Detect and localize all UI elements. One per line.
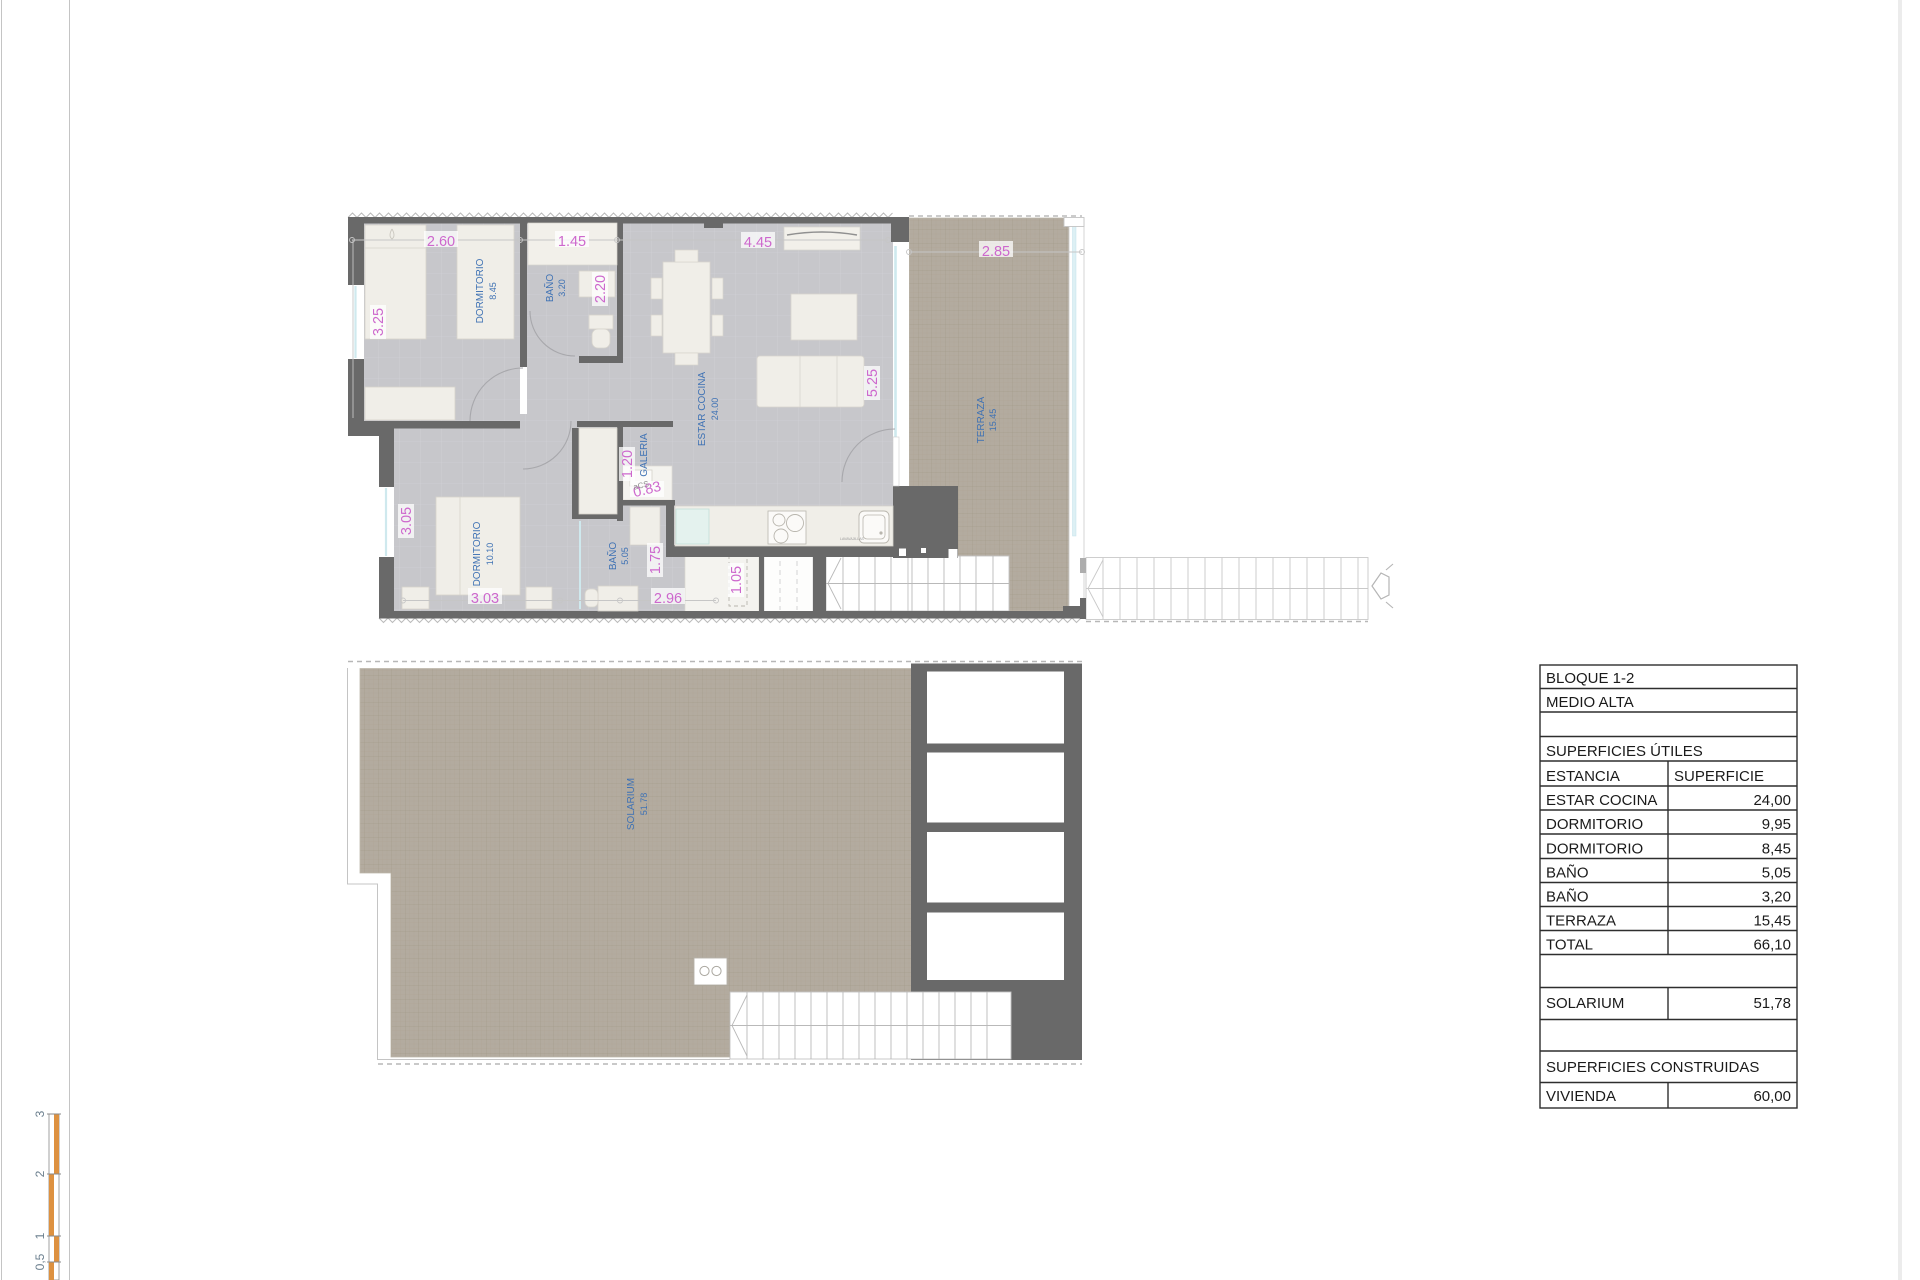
- svg-text:60,00: 60,00: [1753, 1088, 1791, 1105]
- svg-text:SOLARIUM: SOLARIUM: [626, 778, 637, 830]
- svg-text:BAÑO: BAÑO: [1546, 889, 1589, 906]
- svg-text:BLOQUE 1-2: BLOQUE 1-2: [1546, 670, 1634, 687]
- svg-text:TERRAZA: TERRAZA: [1546, 913, 1616, 930]
- svg-text:1: 1: [33, 1232, 47, 1239]
- svg-text:51,78: 51,78: [1753, 995, 1791, 1012]
- svg-text:DORMITORIO: DORMITORIO: [1546, 816, 1643, 833]
- svg-text:SUPERFICIES CONSTRUIDAS: SUPERFICIES CONSTRUIDAS: [1546, 1059, 1759, 1076]
- svg-text:3.05: 3.05: [399, 507, 415, 535]
- svg-text:3: 3: [33, 1110, 47, 1117]
- svg-text:1.75: 1.75: [648, 546, 664, 574]
- svg-text:ESTAR COCINA: ESTAR COCINA: [1546, 792, 1657, 809]
- svg-text:3.20: 3.20: [557, 279, 567, 297]
- svg-text:2.60: 2.60: [427, 234, 455, 250]
- svg-text:0,5: 0,5: [33, 1253, 47, 1270]
- svg-text:VIVIENDA: VIVIENDA: [1546, 1088, 1616, 1105]
- svg-text:15,45: 15,45: [1753, 913, 1791, 930]
- svg-text:8.45: 8.45: [488, 282, 498, 300]
- svg-text:5.25: 5.25: [865, 369, 881, 397]
- svg-text:15.45: 15.45: [988, 409, 998, 432]
- svg-text:3.03: 3.03: [471, 591, 499, 607]
- svg-text:1.20: 1.20: [620, 450, 636, 478]
- svg-text:GALERIA: GALERIA: [639, 433, 650, 477]
- svg-text:SOLARIUM: SOLARIUM: [1546, 995, 1624, 1012]
- svg-text:3,20: 3,20: [1762, 889, 1791, 906]
- svg-text:ESTANCIA: ESTANCIA: [1546, 768, 1620, 785]
- svg-text:1.45: 1.45: [558, 234, 586, 250]
- svg-text:5,05: 5,05: [1762, 865, 1791, 882]
- svg-text:SUPERFICIES ÚTILES: SUPERFICIES ÚTILES: [1546, 743, 1703, 760]
- svg-text:4.45: 4.45: [744, 235, 772, 251]
- svg-text:BAÑO: BAÑO: [606, 542, 619, 571]
- svg-text:TERRAZA: TERRAZA: [976, 396, 987, 443]
- svg-text:MEDIO ALTA: MEDIO ALTA: [1546, 694, 1634, 711]
- svg-text:5.05: 5.05: [620, 547, 630, 565]
- svg-text:9,95: 9,95: [1762, 816, 1791, 833]
- svg-text:DORMITORIO: DORMITORIO: [472, 521, 483, 586]
- svg-text:1.05: 1.05: [729, 566, 745, 594]
- svg-text:2: 2: [33, 1170, 47, 1177]
- svg-text:2.85: 2.85: [982, 244, 1010, 260]
- svg-text:24,00: 24,00: [1753, 792, 1791, 809]
- svg-text:66,10: 66,10: [1753, 937, 1791, 954]
- svg-text:10.10: 10.10: [485, 543, 495, 566]
- svg-text:DORMITORIO: DORMITORIO: [1546, 841, 1643, 858]
- svg-text:DORMITORIO: DORMITORIO: [475, 258, 486, 323]
- svg-text:2.96: 2.96: [654, 591, 682, 607]
- svg-text:BAÑO: BAÑO: [543, 274, 556, 303]
- svg-text:BAÑO: BAÑO: [1546, 865, 1589, 882]
- svg-text:51.78: 51.78: [639, 793, 649, 816]
- svg-text:3.25: 3.25: [371, 308, 387, 336]
- svg-text:LAVAVAJILLAS: LAVAVAJILLAS: [840, 537, 865, 541]
- svg-text:24.00: 24.00: [710, 398, 720, 421]
- svg-text:2.20: 2.20: [593, 275, 609, 303]
- svg-text:TOTAL: TOTAL: [1546, 937, 1593, 954]
- svg-text:8,45: 8,45: [1762, 841, 1791, 858]
- svg-text:ESTAR COCINA: ESTAR COCINA: [697, 372, 708, 447]
- svg-text:SUPERFICIE: SUPERFICIE: [1674, 768, 1764, 785]
